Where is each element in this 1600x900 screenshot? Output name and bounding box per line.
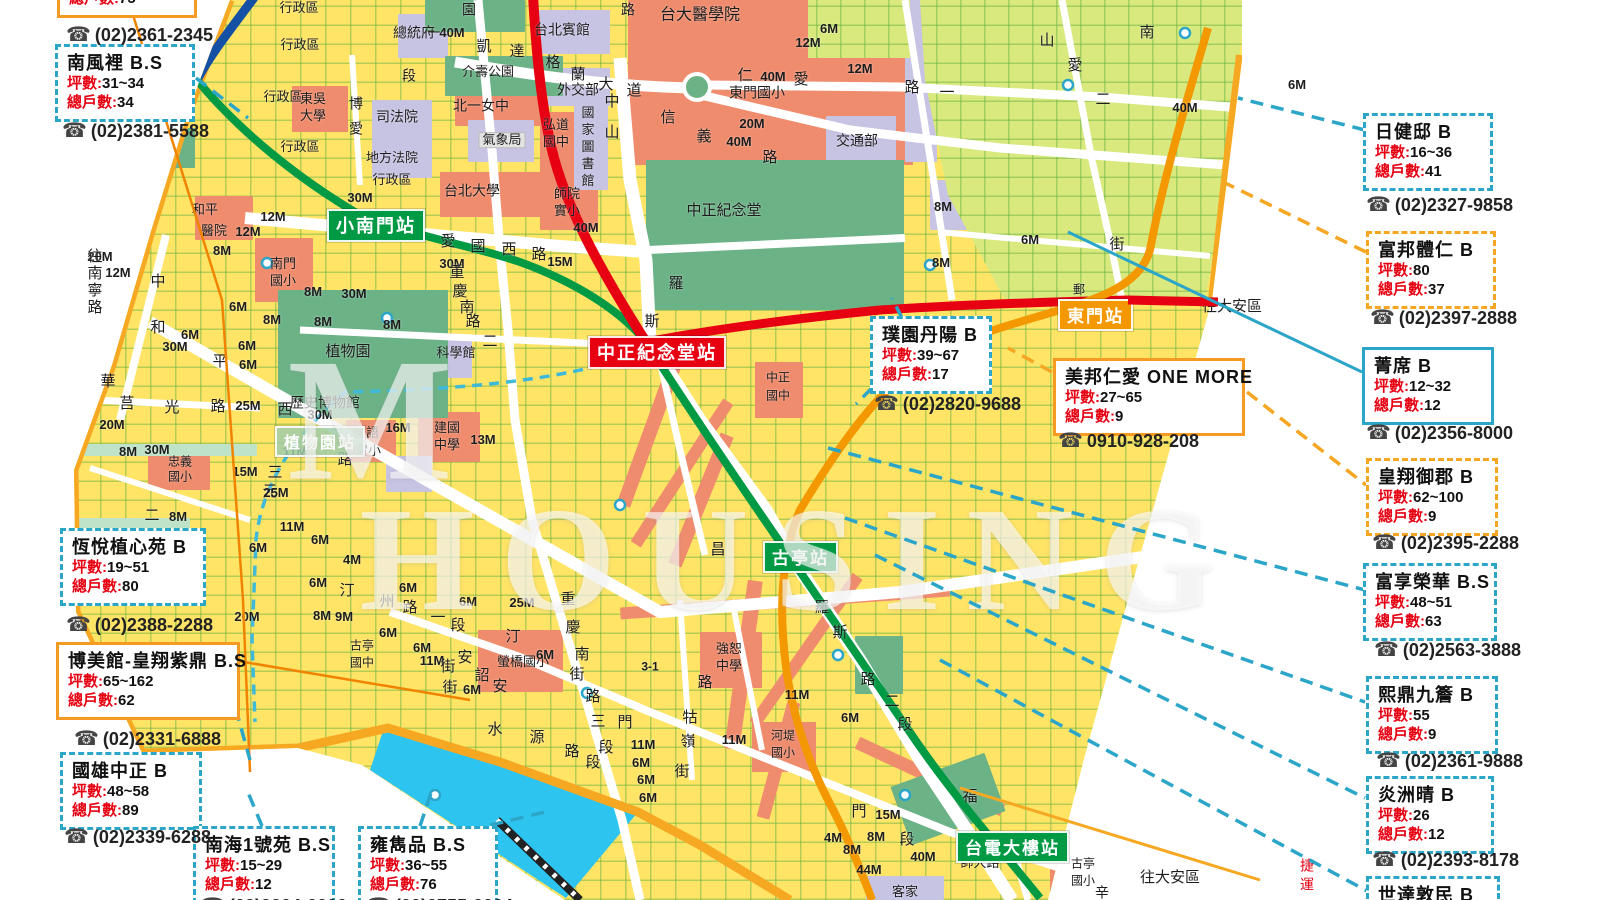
listing-attribute: 總戶數:37 bbox=[1378, 280, 1484, 299]
phone-number: (02)2563-3888 bbox=[1403, 640, 1521, 660]
listing-attribute: 總戶數:76 bbox=[370, 875, 486, 894]
listing-attribute: 坪數:80 bbox=[1378, 261, 1484, 280]
listing-title: 富邦體仁 B bbox=[1378, 239, 1484, 261]
map-canvas[interactable]: 行政區園路台大醫學院行政區總統府一40M台北賓館凱達格蘭大道介壽公園外交部東門國… bbox=[0, 0, 1600, 900]
listing-attribute: 總戶數:9 bbox=[1378, 507, 1486, 526]
listing-callout: 菁席 B坪數:12~32總戶數:12 bbox=[1362, 347, 1494, 425]
phone-icon: ☎ bbox=[874, 393, 899, 415]
phone-icon: ☎ bbox=[62, 120, 87, 142]
listing-callout: 恆悅植心苑 B坪數:19~51總戶數:80 bbox=[60, 528, 206, 606]
listing-phone: ☎(02)2388-2288 bbox=[66, 612, 213, 637]
listing-title: 熙鼎九簷 B bbox=[1378, 684, 1486, 706]
phone-icon: ☎ bbox=[1374, 639, 1399, 661]
listing-title: 菁席 B bbox=[1374, 355, 1482, 377]
listing-callout: 國雄中正 B坪數:48~58總戶數:89 bbox=[60, 752, 202, 830]
phone-number: (02)2395-2288 bbox=[1401, 533, 1519, 553]
phone-icon: ☎ bbox=[1376, 750, 1401, 772]
listing-attribute: 總戶數:41 bbox=[1375, 162, 1481, 181]
phone-icon: ☎ bbox=[1370, 307, 1395, 329]
listing-title: 皇翔御郡 B bbox=[1378, 466, 1486, 488]
phone-icon: ☎ bbox=[64, 826, 89, 848]
phone-number: 0910-928-208 bbox=[1087, 431, 1199, 451]
listing-attribute: 坪數:12~32 bbox=[1374, 377, 1482, 396]
listing-callout: 日健邸 B坪數:16~36總戶數:41 bbox=[1363, 113, 1493, 191]
phone-icon: ☎ bbox=[1366, 194, 1391, 216]
phone-number: (02)2331-6888 bbox=[103, 729, 221, 749]
listing-attribute: 總戶數:63 bbox=[1375, 612, 1485, 631]
phone-number: (02)2388-2288 bbox=[95, 615, 213, 635]
phone-number: (02)2397-2888 bbox=[1399, 308, 1517, 328]
phone-icon: ☎ bbox=[1366, 422, 1391, 444]
listing-title: 國雄中正 B bbox=[72, 760, 190, 782]
listing-callout: 美邦仁愛 ONE MORE坪數:27~65總戶數:9 bbox=[1053, 358, 1245, 436]
listing-callout: 炎洲晴 B坪數:26總戶數:12 bbox=[1366, 776, 1494, 854]
listing-attribute: 坪數:16~36 bbox=[1375, 143, 1481, 162]
listing-attribute: 坪數:55 bbox=[1378, 706, 1486, 725]
phone-number: (02)2361-9888 bbox=[1405, 751, 1523, 771]
listing-title: 恆悅植心苑 B bbox=[72, 536, 194, 558]
listing-attribute: 坪數:48~51 bbox=[1375, 593, 1485, 612]
listing-title: 雍雋品 B.S bbox=[370, 834, 486, 856]
listing-attribute: 坪數:65~162 bbox=[68, 672, 228, 691]
listing-attribute: 總戶數:34 bbox=[67, 93, 183, 112]
phone-icon: ☎ bbox=[74, 728, 99, 750]
listing-phone: ☎(02)2381-5588 bbox=[62, 118, 209, 143]
phone-icon: ☎ bbox=[366, 895, 391, 900]
listing-title: 南海1號苑 B.S bbox=[205, 834, 323, 856]
listing-title: 美邦仁愛 ONE MORE bbox=[1065, 366, 1233, 388]
listing-attribute: 坪數:31~34 bbox=[67, 74, 183, 93]
listing-callout: 富享榮華 B.S坪數:48~51總戶數:63 bbox=[1363, 563, 1497, 641]
listing-phone: ☎0910-928-208 bbox=[1058, 428, 1199, 453]
listing-callout: 博美館-皇翔紫鼎 B.S坪數:65~162總戶數:62 bbox=[56, 642, 240, 720]
phone-number: (02)2339-6288 bbox=[93, 827, 211, 847]
listing-attribute: 坪數:48~58 bbox=[72, 782, 190, 801]
listing-title: 日健邸 B bbox=[1375, 121, 1481, 143]
phone-number: (02)2755-0004 bbox=[395, 896, 513, 900]
listing-attribute: 總戶數:62 bbox=[68, 691, 228, 710]
listing-attribute: 坪數:27~65 bbox=[1065, 388, 1233, 407]
phone-number: (02)2820-9688 bbox=[903, 394, 1021, 414]
phone-number: (02)2361-2345 bbox=[95, 25, 213, 45]
listing-phone: ☎(02)2395-2288 bbox=[1372, 530, 1519, 555]
listing-callout: 富邦體仁 B坪數:80總戶數:37 bbox=[1366, 231, 1496, 309]
listing-phone: ☎(02)2361-9888 bbox=[1376, 748, 1523, 773]
phone-icon: ☎ bbox=[66, 24, 91, 46]
callouts-layer: 總戶數:75☎(02)2361-2345南風裡 B.S坪數:31~34總戶數:3… bbox=[0, 0, 1600, 900]
listing-callout: 南海1號苑 B.S坪數:15~29總戶數:12 bbox=[193, 826, 335, 900]
listing-phone: ☎(02)2393-8178 bbox=[1372, 847, 1519, 872]
listing-phone: ☎(02)2397-2888 bbox=[1370, 305, 1517, 330]
listing-callout: 熙鼎九簷 B坪數:55總戶數:9 bbox=[1366, 676, 1498, 754]
listing-phone: ☎(02)2356-8000 bbox=[1366, 420, 1513, 445]
listing-phone: ☎(02)2331-6888 bbox=[74, 726, 221, 751]
listing-phone: ☎(02)2361-2345 bbox=[66, 22, 213, 47]
listing-attribute: 總戶數:9 bbox=[1065, 407, 1233, 426]
listing-attribute: 坪數:19~51 bbox=[72, 558, 194, 577]
listing-title: 南風裡 B.S bbox=[67, 52, 183, 74]
phone-number: (02)2304-2000 bbox=[229, 896, 347, 900]
listing-callout: 璞園丹陽 B坪數:39~67總戶數:17 bbox=[870, 316, 992, 394]
listing-phone: ☎(02)2304-2000 bbox=[200, 893, 347, 900]
listing-callout: 皇翔御郡 B坪數:62~100總戶數:9 bbox=[1366, 458, 1498, 536]
listing-callout: 總戶數:75 bbox=[57, 0, 197, 18]
listing-attribute: 總戶數:9 bbox=[1378, 725, 1486, 744]
listing-attribute: 坪數:62~100 bbox=[1378, 488, 1486, 507]
phone-number: (02)2393-8178 bbox=[1401, 850, 1519, 870]
listing-title: 世達敦民 B bbox=[1378, 884, 1488, 900]
phone-icon: ☎ bbox=[1372, 849, 1397, 871]
listing-callout: 世達敦民 B bbox=[1366, 876, 1500, 900]
phone-number: (02)2381-5588 bbox=[91, 121, 209, 141]
listing-attribute: 坪數:26 bbox=[1378, 806, 1482, 825]
listing-phone: ☎(02)2563-3888 bbox=[1374, 637, 1521, 662]
listing-attribute: 總戶數:75 bbox=[69, 0, 185, 8]
listing-attribute: 總戶數:12 bbox=[205, 875, 323, 894]
listing-title: 炎洲晴 B bbox=[1378, 784, 1482, 806]
listing-attribute: 坪數:39~67 bbox=[882, 346, 980, 365]
listing-phone: ☎(02)2327-9858 bbox=[1366, 192, 1513, 217]
listing-attribute: 總戶數:80 bbox=[72, 577, 194, 596]
phone-icon: ☎ bbox=[1058, 430, 1083, 452]
phone-icon: ☎ bbox=[200, 895, 225, 900]
listing-title: 璞園丹陽 B bbox=[882, 324, 980, 346]
listing-attribute: 坪數:15~29 bbox=[205, 856, 323, 875]
listing-attribute: 總戶數:17 bbox=[882, 365, 980, 384]
phone-number: (02)2327-9858 bbox=[1395, 195, 1513, 215]
listing-phone: ☎(02)2339-6288 bbox=[64, 824, 211, 849]
listing-title: 博美館-皇翔紫鼎 B.S bbox=[68, 650, 228, 672]
listing-title: 富享榮華 B.S bbox=[1375, 571, 1485, 593]
listing-attribute: 總戶數:89 bbox=[72, 801, 190, 820]
listing-attribute: 總戶數:12 bbox=[1374, 396, 1482, 415]
listing-callout: 南風裡 B.S坪數:31~34總戶數:34 bbox=[55, 44, 195, 122]
listing-attribute: 總戶數:12 bbox=[1378, 825, 1482, 844]
listing-phone: ☎(02)2820-9688 bbox=[874, 391, 1021, 416]
phone-icon: ☎ bbox=[1372, 532, 1397, 554]
phone-icon: ☎ bbox=[66, 614, 91, 636]
listing-callout: 雍雋品 B.S坪數:36~55總戶數:76 bbox=[358, 826, 498, 900]
phone-number: (02)2356-8000 bbox=[1395, 423, 1513, 443]
listing-phone: ☎(02)2755-0004 bbox=[366, 893, 513, 900]
listing-attribute: 坪數:36~55 bbox=[370, 856, 486, 875]
